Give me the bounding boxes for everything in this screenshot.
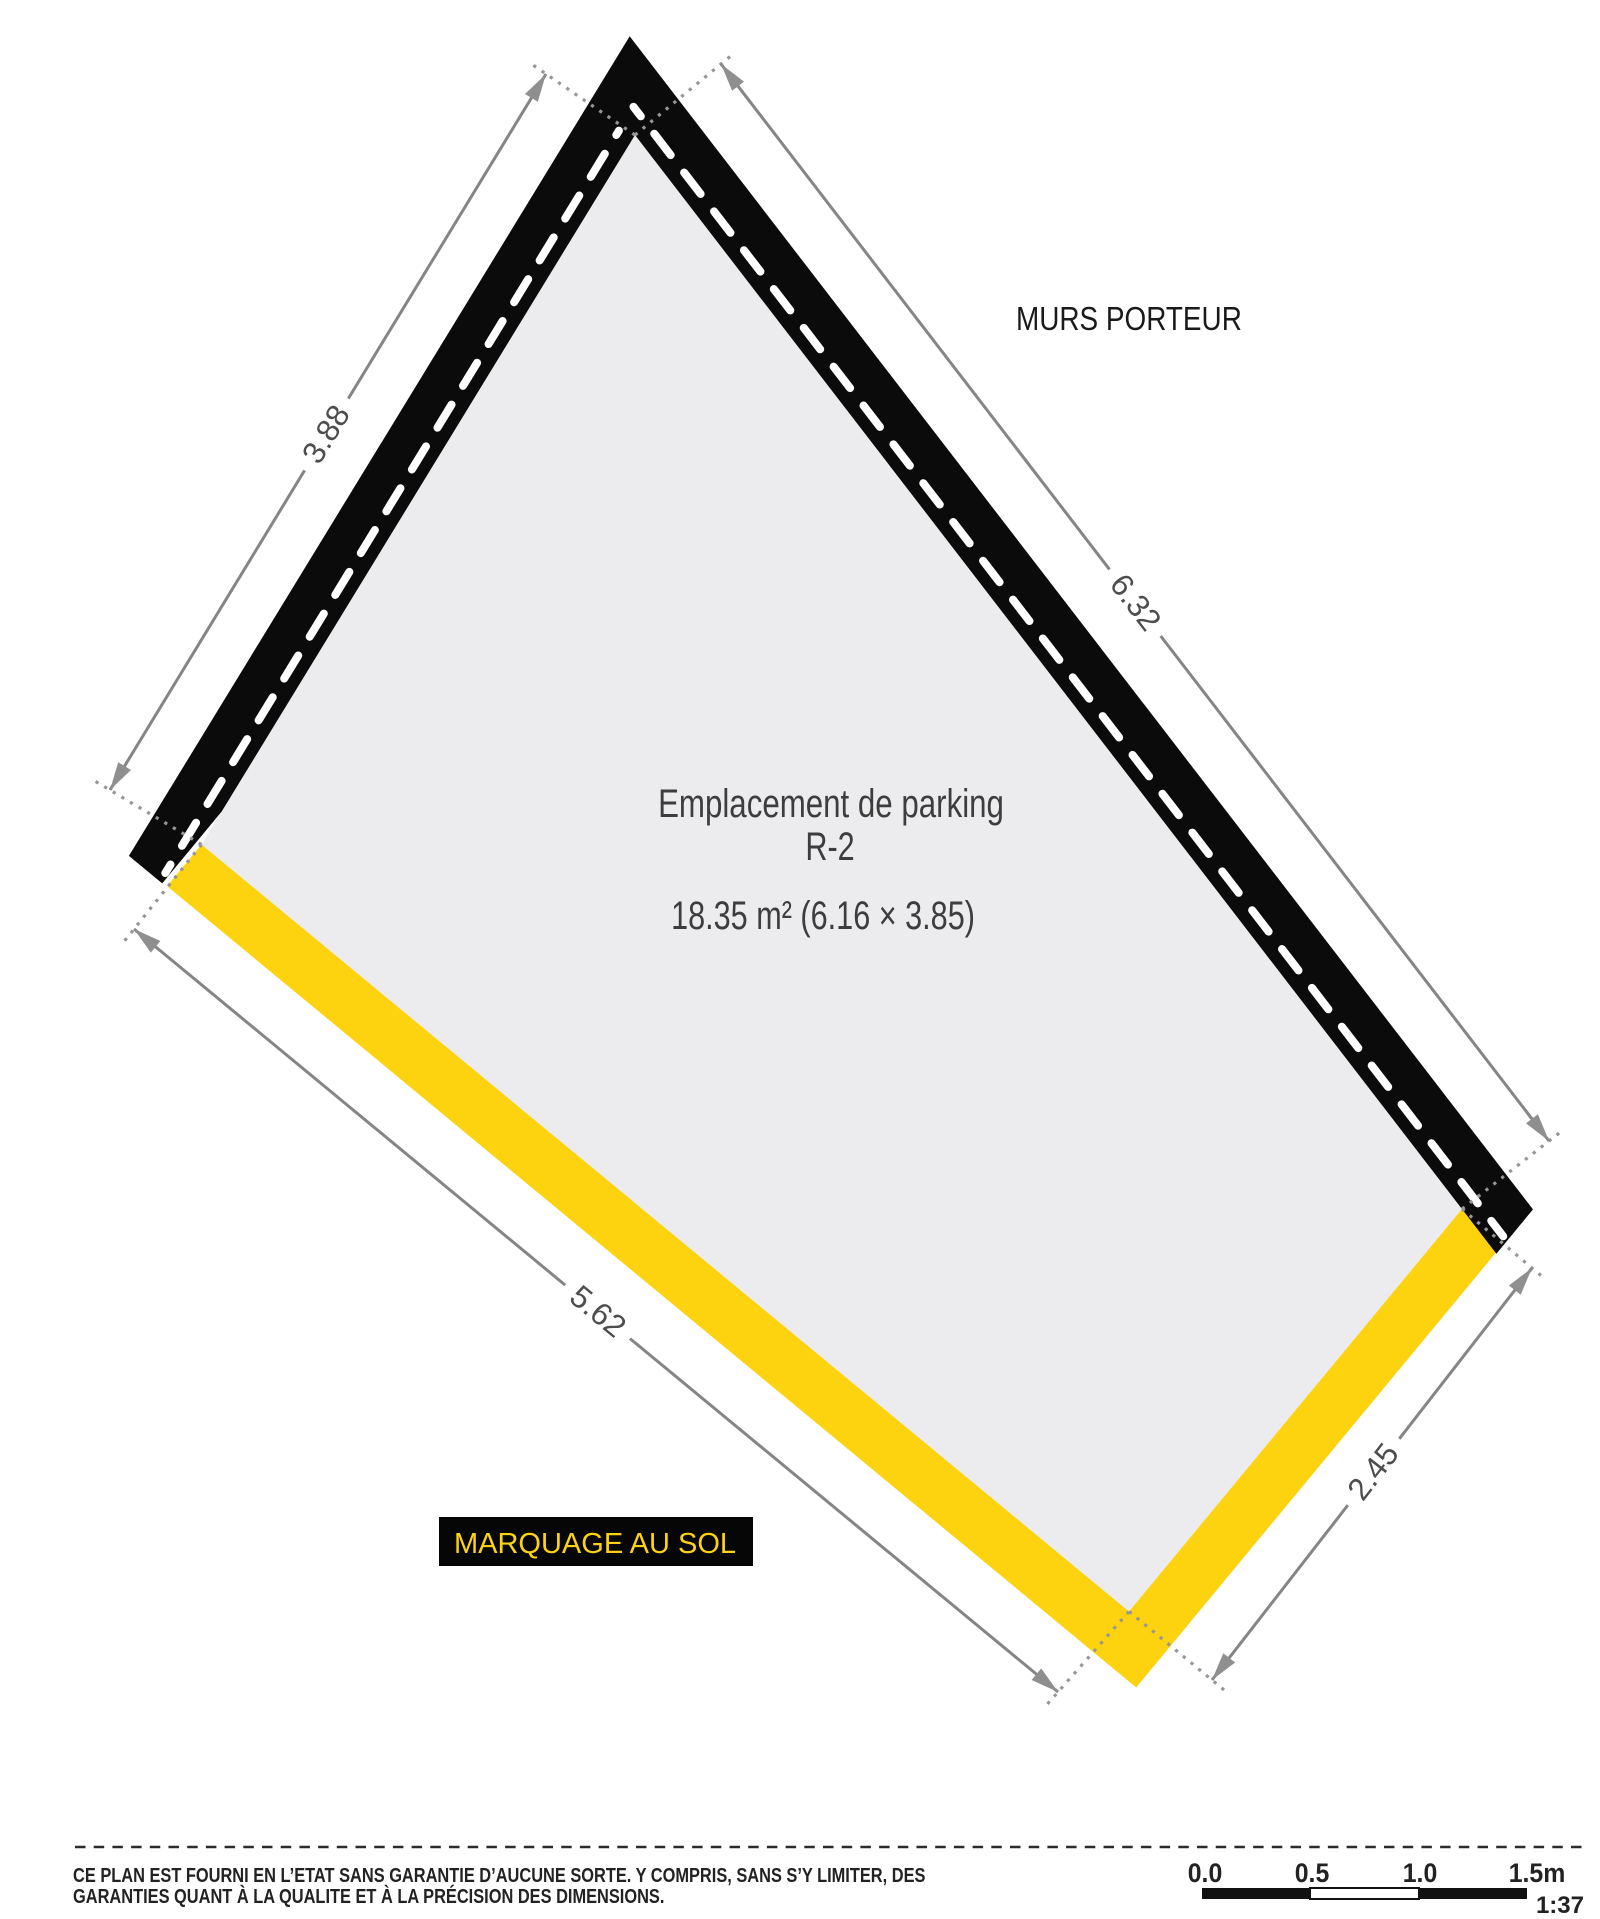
svg-text:1:37: 1:37 [1536, 1892, 1584, 1919]
svg-text:0.0: 0.0 [1188, 1859, 1223, 1888]
svg-text:MURS PORTEUR: MURS PORTEUR [1016, 300, 1242, 338]
svg-text:R-2: R-2 [805, 824, 854, 869]
svg-text:0.5: 0.5 [1295, 1859, 1330, 1888]
svg-text:1.5m: 1.5m [1509, 1859, 1566, 1888]
svg-text:1.0: 1.0 [1403, 1859, 1438, 1888]
svg-text:Emplacement de parking: Emplacement de parking [658, 781, 1004, 826]
svg-text:CE PLAN EST FOURNI EN L’ETAT S: CE PLAN EST FOURNI EN L’ETAT SANS GARANT… [73, 1863, 925, 1886]
svg-text:GARANTIES QUANT À LA QUALITE E: GARANTIES QUANT À LA QUALITE ET À LA PRÉ… [73, 1884, 664, 1907]
svg-text:18.35 m² (6.16 × 3.85): 18.35 m² (6.16 × 3.85) [671, 893, 975, 938]
svg-text:MARQUAGE AU SOL: MARQUAGE AU SOL [454, 1528, 736, 1560]
